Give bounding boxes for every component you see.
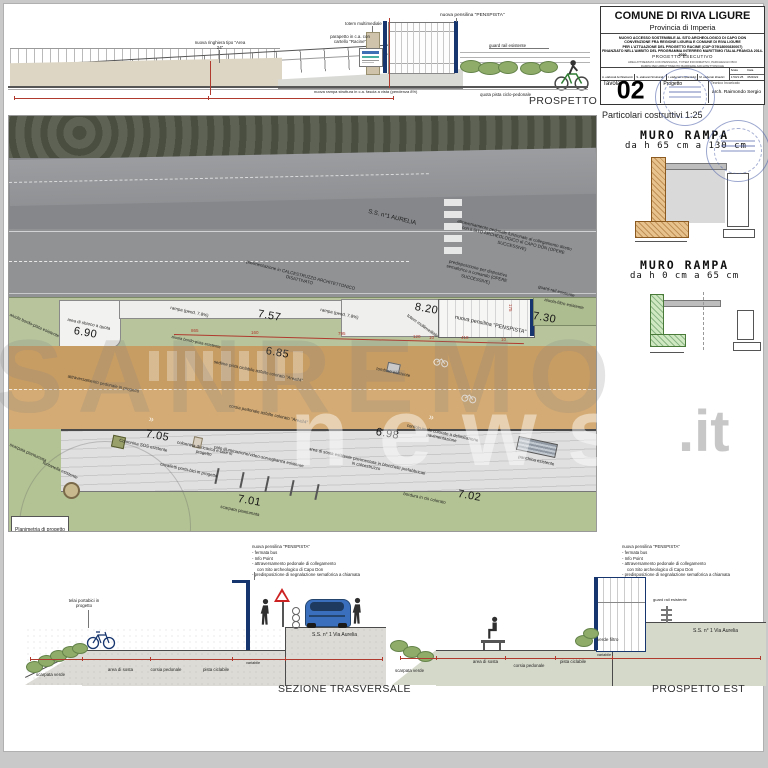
muro2-subtitle: da h 0 cm a 65 cm [630,271,739,281]
scarpata-verde-label: scarpata verde [36,672,65,677]
scala-label: Scala [730,68,748,74]
est-annotation: nuova pensilina "PENSPISTA" - fermata bu… [622,544,768,578]
dim-795: 795 [338,331,346,336]
scarpata-verde-label: scarpata verde [395,668,424,673]
pensilina-roof-arm [232,580,249,583]
pista-label: pista ciclabile [198,667,234,672]
dim-tick [393,96,394,100]
ground-line-2 [8,89,588,90]
bollard-icon [292,621,300,629]
racine-sign [359,48,383,67]
plan-frame-label-box: Planimetria di progetto [11,516,69,532]
label-rampa-nota: nuova rampa struttura in c.a. fascia a v… [314,90,417,95]
dim-160: 160 [251,330,259,335]
project-line-2: CONVENZIONE FRA REGIONE LIGURIA E COMUNE… [601,40,764,44]
data-label: Data [747,68,764,74]
dim-vertical [210,61,211,95]
dim-tick [208,96,209,100]
guardrail-rail [661,614,672,616]
provincia-subtitle: Provincia di Imperia [601,23,764,32]
road-edge-line-bottom [9,293,596,294]
sezione-trasversale-drawing: nuova pensilina "PENSPISTA" - fermata bu… [0,540,400,700]
dim-tick [760,656,761,660]
dim-tick [436,656,437,660]
pensilina-panels [388,22,455,74]
dim-tick [30,657,31,661]
variabile-label: variabile [246,661,260,666]
guardrail-label: guard rail esistente [653,598,687,603]
dim-865: 865 [191,328,199,333]
dimension-line [14,98,394,99]
dashed-reference [703,292,704,350]
shrub-icon [417,651,434,662]
dim-tick [150,657,151,661]
round-stamp-icon [706,120,768,182]
ground-line [8,86,588,88]
leader-line [219,50,220,63]
bench-leg [499,642,501,650]
area-sosta-label: area di sosta [463,659,508,664]
warning-sign-icon [274,588,290,602]
label-pensilina: nuova pensilina "PENSPISTA" [440,13,505,19]
dim-tick [382,657,383,661]
scala-data-cell: Scala Data 1:50/1:25 05/2022 [729,68,764,80]
guardrail-rail [661,619,672,621]
dim-vertical [389,18,390,88]
wall-footing-green [650,334,686,347]
car-icon [305,597,349,627]
round-stamp-icon [655,68,715,126]
divider [601,33,764,34]
label-ringhiera: nuova ringhiera tipo "Area 24" [193,40,247,51]
dim-175: 175 [508,304,513,312]
label-quota-pista: quota pista ciclo-pedonale [480,92,531,97]
leader-line [254,572,255,580]
rebar-diagram [733,342,761,351]
prospetto-est-title: PROSPETTO EST [652,683,745,695]
pedestrian-icon [352,597,363,626]
strada-label: S.S. n° 1 Via Aurelia [312,632,357,638]
leader-line [456,18,457,22]
prospetto-valle-drawing: nuova ringhiera tipo "Area 24" totem mul… [8,6,595,110]
pista-label: pista ciclabile [555,659,591,664]
ann-title: nuova pensilina "PENSPISTA" [622,544,768,550]
label-parapetto: parapetto in c.a. con cartello "Racine" [330,34,370,45]
pensilina-column-left [383,21,387,73]
tavola-cell: Tavola 02 [601,80,660,103]
wall-stem [651,157,666,225]
pensilina-column-right [454,21,458,73]
pedestrian-icon [260,598,271,627]
project-line-3: PER L'ATTUAZIONE DEL PROGETTO RACINE (CU… [601,45,764,49]
guardrail-rail [661,609,672,611]
planimetria-drawing: » » 865 160 795 120 10 418 10 175 S.S. n… [8,115,597,532]
ramp-corridor [119,300,351,319]
detail-dim-line [650,352,684,353]
dim-tick [285,657,286,661]
fountain-symbol [63,482,80,499]
pensilina-pole [246,580,250,650]
project-line-1: NUOVO ACCESSO SOSTENIBILE AL SITO ARCHEO… [601,36,764,40]
dim-tick [232,657,233,661]
dim-tick [612,656,613,660]
dim-tick [400,656,401,660]
variabile-label: variabile [597,653,611,658]
comune-title: COMUNE DI RIVA LIGURE [601,10,764,22]
tecnico-value: arch. Raimondo Sergio [712,90,761,95]
rebar-diagram [737,310,754,340]
tavola-number: 02 [617,77,645,106]
plan-frame-label: Planimetria di progetto [15,527,65,532]
tecnico-cell: Tecnico Incaricato arch. Raimondo Sergio [708,80,764,103]
bike-rack-icon [85,628,117,650]
lane-separator [9,389,596,390]
detail-dim-line [635,241,687,242]
verde-filtro-label: verde filtro [597,637,618,643]
dim-tick [82,657,83,661]
dim-10b: 10 [501,337,506,342]
prospetto-est-drawing: nuova pensilina "PENSPISTA" - fermata bu… [385,540,768,700]
road-center-line [9,261,409,262]
dim-120: 120 [413,334,421,339]
leader-line [372,26,373,32]
shrub-icon [498,61,518,74]
retained-soil [665,167,725,223]
corsia-label: corsia pedonale [148,667,184,672]
rebar-diagram [723,229,755,238]
telai-label: telai portabici in progetto [62,598,106,609]
area-sosta-label: area di sosta [98,667,143,672]
wall-footing [635,221,689,238]
label-totem: totem multimediale [345,21,382,26]
pavement-strip [661,300,721,307]
leader-line [88,610,89,628]
muro2-title: MURO RAMPA [640,258,729,272]
bench-leg [483,642,485,650]
muro2-detail-drawing [615,292,765,362]
tecnico-label: Tecnico Incaricato [711,81,740,85]
leader-line [489,48,549,49]
corsia-label: corsia pedonale [511,663,547,668]
dim-tick [14,96,15,100]
warning-sign-pole [282,601,284,627]
strada-label: S.S. n° 1 Via Aurelia [693,628,738,634]
dim-418: 418 [461,335,469,340]
stage-label: PROGETTO ESECUTIVO [601,54,764,59]
